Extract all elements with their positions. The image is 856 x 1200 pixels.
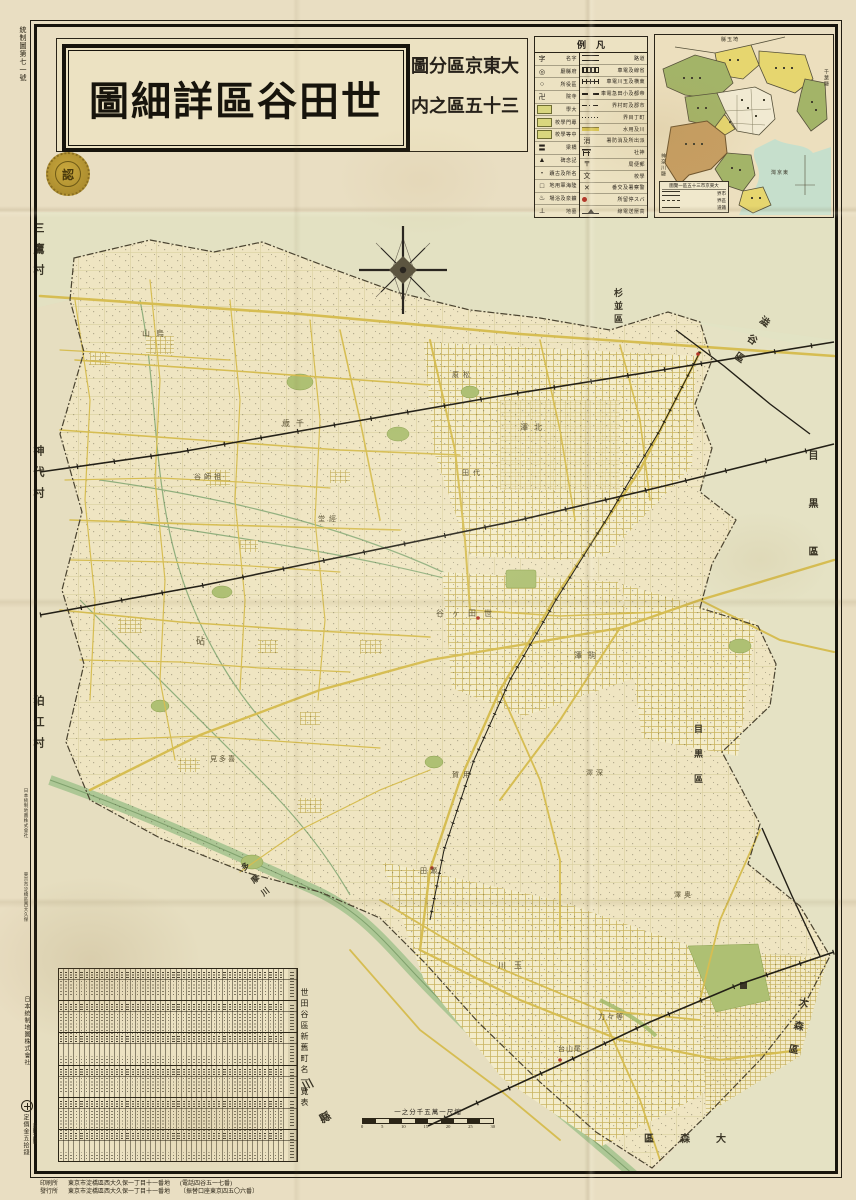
legend-symbol-glyph: 消 <box>582 137 592 145</box>
table-column <box>69 1033 74 1064</box>
table-band <box>59 1066 297 1098</box>
table-column <box>248 1098 253 1129</box>
table-column <box>90 969 95 1000</box>
table-column <box>80 1098 85 1129</box>
table-column <box>151 1001 156 1032</box>
table-column <box>110 1033 115 1064</box>
legend-symbol-water <box>582 127 599 131</box>
table-column <box>233 1033 238 1064</box>
scale-tick: 30 <box>490 1124 495 1129</box>
legend-symbol-dashdot <box>582 105 599 106</box>
legend-symbol-box <box>537 130 552 139</box>
table-column <box>59 1001 64 1032</box>
table-column <box>120 1098 125 1129</box>
legend-row: 局便郵〒 <box>580 159 647 171</box>
table-column <box>126 1033 131 1064</box>
table-column <box>59 969 64 1000</box>
table-column <box>274 1033 279 1064</box>
margin-note: 日本統制地圖株式會社 <box>23 788 29 838</box>
table-column <box>197 1098 202 1129</box>
price-label: 定價金五拾錢 <box>21 1114 30 1156</box>
table-column <box>269 969 274 1000</box>
table-column <box>146 969 151 1000</box>
table-column <box>171 1033 176 1064</box>
table-column <box>105 1098 110 1129</box>
table-band-header <box>288 969 297 1000</box>
table-column <box>253 1066 258 1097</box>
legend-label: 署防消及所出派 <box>594 137 645 144</box>
table-column <box>279 1033 284 1064</box>
legend-row: 所留停スバ <box>580 194 647 206</box>
table-column <box>146 1001 151 1032</box>
publisher-name-vertical: 日本統制地圖株式會社 <box>22 996 31 1066</box>
legend-row: 所役區○ <box>535 78 579 91</box>
series-line-1: 圖分區京東大 <box>407 47 523 87</box>
table-column <box>248 1066 253 1097</box>
table-column <box>279 969 284 1000</box>
table-column <box>131 1066 136 1097</box>
table-column <box>274 969 279 1000</box>
legend-symbol-glyph: ・ <box>537 169 547 177</box>
table-column <box>192 1033 197 1064</box>
imprint-label: 發行所 <box>40 1189 58 1195</box>
table-column <box>228 1066 233 1097</box>
table-column <box>90 1033 95 1064</box>
legend-label: 界村町及郡市 <box>601 102 645 109</box>
table-column <box>217 1066 222 1097</box>
town-names-table <box>58 968 298 1162</box>
scale-tick: 0 <box>361 1124 363 1129</box>
legend-row: 校學文 <box>580 171 647 183</box>
table-column <box>90 1098 95 1129</box>
table-column <box>156 1098 161 1129</box>
imprint-label: 印刷所 <box>40 1181 58 1187</box>
table-column <box>64 1130 69 1161</box>
legend-row: 校學門專 <box>535 116 579 129</box>
table-column <box>126 1098 131 1129</box>
series-title: 圖分區京東大 内之區五十三 <box>407 47 523 126</box>
table-column <box>105 1033 110 1064</box>
table-column <box>136 969 141 1000</box>
legend-row: 校學等中 <box>535 129 579 142</box>
table-column <box>100 1033 105 1064</box>
legend-label: 界目丁町 <box>601 114 645 121</box>
table-column <box>80 1001 85 1032</box>
legend-column-right: 路道車電及線省車電川玉及横東車電急田小及都帝界村町及郡市界目丁町水用及川署防消及… <box>579 53 647 217</box>
table-column <box>59 1033 64 1064</box>
table-column <box>156 1130 161 1161</box>
table-column <box>136 1066 141 1097</box>
table-column <box>197 1033 202 1064</box>
legend-symbol-glyph: ◎ <box>537 68 547 76</box>
table-column <box>279 1098 284 1129</box>
table-column <box>258 1033 263 1064</box>
table-column <box>120 1033 125 1064</box>
table-band-header <box>288 1001 297 1032</box>
table-column <box>263 1066 268 1097</box>
table-column <box>69 969 74 1000</box>
table-column <box>85 1098 90 1129</box>
margin-note: 東京市淀橋區西大久保 <box>23 872 29 922</box>
table-column <box>110 969 115 1000</box>
table-column <box>182 1001 187 1032</box>
table-column <box>80 1033 85 1064</box>
legend-row: 社神 <box>580 147 647 159</box>
legend-symbol-glyph: □ <box>537 182 547 190</box>
legend-row: 車電川玉及横東 <box>580 77 647 89</box>
table-column <box>110 1001 115 1032</box>
table-column <box>95 969 100 1000</box>
table-column <box>141 1098 146 1129</box>
table-column <box>248 1001 253 1032</box>
table-column <box>253 1001 258 1032</box>
legend-symbol-tram <box>582 79 599 84</box>
table-column <box>233 1130 238 1161</box>
table-column <box>141 1001 146 1032</box>
table-column <box>161 1098 166 1129</box>
table-column <box>207 1130 212 1161</box>
table-column <box>151 1130 156 1161</box>
table-band <box>59 1098 297 1130</box>
table-column <box>74 1130 79 1161</box>
table-column <box>238 1098 243 1129</box>
table-column <box>80 969 85 1000</box>
imprint-addr: 東京市淀橋區西大久保一丁目十一番地 <box>68 1181 170 1187</box>
table-column <box>238 969 243 1000</box>
table-column <box>166 1130 171 1161</box>
table-column <box>197 1130 202 1161</box>
table-column <box>228 1130 233 1161</box>
table-column <box>243 1098 248 1129</box>
table-column <box>202 1066 207 1097</box>
table-column <box>90 1130 95 1161</box>
inset-locator-map: 縣玉埼千葉縣神奈川縣灣京東 圖覽一區五十三市京東大 界市界區道鐵 <box>654 34 834 218</box>
table-column <box>100 1001 105 1032</box>
legend-symbol-glyph: ▲ <box>537 156 547 164</box>
table-column <box>223 1066 228 1097</box>
table-column <box>207 1033 212 1064</box>
table-column <box>192 1066 197 1097</box>
table-column <box>279 1066 284 1097</box>
table-column <box>69 1098 74 1129</box>
table-column <box>253 1033 258 1064</box>
legend-title: 例凡 <box>535 37 647 53</box>
table-column <box>64 1098 69 1129</box>
table-column <box>202 969 207 1000</box>
table-column <box>228 1033 233 1064</box>
table-column <box>177 1001 182 1032</box>
table-column <box>120 1130 125 1161</box>
table-column <box>197 1066 202 1097</box>
table-column <box>233 969 238 1000</box>
table-column <box>202 1098 207 1129</box>
table-column <box>141 1066 146 1097</box>
legend-row: 地用軍海陸□ <box>535 180 579 193</box>
table-column <box>166 969 171 1000</box>
table-column <box>182 969 187 1000</box>
table-column <box>177 1066 182 1097</box>
table-column <box>258 969 263 1000</box>
legend-label: 水用及川 <box>601 126 645 133</box>
table-column <box>90 1001 95 1032</box>
table-band-header <box>288 1066 297 1097</box>
table-column <box>274 1130 279 1161</box>
table-column <box>228 1001 233 1032</box>
table-column <box>136 1130 141 1161</box>
legend-row: 廳縣府◎ <box>535 66 579 79</box>
table-column <box>85 969 90 1000</box>
table-column <box>187 1098 192 1129</box>
legend-row: 界村町及郡市 <box>580 100 647 112</box>
table-column <box>274 1001 279 1032</box>
table-column <box>156 1066 161 1097</box>
table-column <box>238 1066 243 1097</box>
table-column <box>263 969 268 1000</box>
table-column <box>146 1033 151 1064</box>
inset-legend-row: 界區 <box>662 197 726 204</box>
table-column <box>233 1066 238 1097</box>
legend-row: 學大 <box>535 104 579 117</box>
table-column <box>171 1130 176 1161</box>
table-column <box>126 1001 131 1032</box>
table-column <box>279 1130 284 1161</box>
inset-legend-title: 圖覽一區五十三市京東大 <box>662 183 726 190</box>
table-column <box>166 1066 171 1097</box>
table-column <box>263 1130 268 1161</box>
table-column <box>223 1098 228 1129</box>
main-title-box: 圖細詳區谷田世 <box>62 44 410 152</box>
table-column <box>253 1130 258 1161</box>
legend-symbol-box <box>537 105 552 114</box>
legend-symbol-rail <box>582 67 599 73</box>
table-column <box>80 1066 85 1097</box>
table-column <box>161 1130 166 1161</box>
title-block: 圖細詳區谷田世 圖分區京東大 内之區五十三 <box>56 38 528 152</box>
table-column <box>212 1130 217 1161</box>
certification-seal: 認 <box>46 152 90 196</box>
table-column <box>85 1066 90 1097</box>
legend-row: 蹟古及所名・ <box>535 167 579 180</box>
price-note: 〔送料六錢〕 <box>32 1120 38 1147</box>
table-column <box>110 1066 115 1097</box>
imprint-line: 發行所東京市淀橋區西大久保一丁目十一番地〔振替口座東京四五〇六番〕 <box>40 1188 268 1196</box>
table-column <box>228 969 233 1000</box>
legend-label: 車電及線省 <box>601 67 645 74</box>
table-column <box>126 969 131 1000</box>
table-column <box>110 1098 115 1129</box>
table-column <box>126 1130 131 1161</box>
legend-row: 水用及川 <box>580 124 647 136</box>
legend-symbol-box <box>537 118 552 127</box>
table-column <box>69 1001 74 1032</box>
legend-row: 院寺卍 <box>535 91 579 104</box>
table-column <box>90 1066 95 1097</box>
table-column <box>182 1130 187 1161</box>
table-column <box>182 1066 187 1097</box>
table-column <box>187 1001 192 1032</box>
legend-label: 場浴及泉鑛 <box>549 195 577 202</box>
table-column <box>177 969 182 1000</box>
table-column <box>151 1033 156 1064</box>
table-column <box>95 1098 100 1129</box>
table-column <box>166 1001 171 1032</box>
table-column <box>223 1001 228 1032</box>
table-column <box>74 969 79 1000</box>
table-column <box>253 969 258 1000</box>
table-column <box>64 1001 69 1032</box>
scale-text: 一之分千五萬一尺縮 <box>350 1106 506 1116</box>
table-column <box>115 1066 120 1097</box>
table-column <box>115 1130 120 1161</box>
inset-label: 神奈川縣 <box>659 153 666 177</box>
table-column <box>120 1066 125 1097</box>
table-band <box>59 969 297 1001</box>
town-names-table-title: 世田谷區新舊町名一覽表 <box>299 988 310 1109</box>
table-column <box>95 1033 100 1064</box>
legend-symbol-glyph: 卍 <box>537 93 547 101</box>
legend-symbol-power <box>582 213 599 214</box>
legend-label: 碑念記 <box>549 157 577 164</box>
table-column <box>80 1130 85 1161</box>
table-column <box>223 1130 228 1161</box>
table-band <box>59 1130 297 1161</box>
table-column <box>269 1033 274 1064</box>
table-column <box>269 1066 274 1097</box>
table-column <box>146 1066 151 1097</box>
table-column <box>85 1130 90 1161</box>
imprint-addr: 東京市淀橋區西大久保一丁目十一番地 <box>68 1189 170 1195</box>
table-column <box>243 1001 248 1032</box>
table-column <box>74 1001 79 1032</box>
table-column <box>182 1098 187 1129</box>
table-column <box>95 1066 100 1097</box>
inset-label: 灣京東 <box>771 169 789 176</box>
legend-row: 車電急田小及都帝 <box>580 88 647 100</box>
legend-row: 路道 <box>580 53 647 65</box>
scale-tick: 25 <box>468 1124 473 1129</box>
table-column <box>238 1130 243 1161</box>
table-column <box>100 969 105 1000</box>
table-column <box>151 969 156 1000</box>
table-column <box>100 1066 105 1097</box>
table-column <box>217 1098 222 1129</box>
table-column <box>161 1001 166 1032</box>
map-title: 圖細詳區谷田世 <box>89 69 383 127</box>
legend-label: 院寺 <box>549 93 577 100</box>
table-column <box>269 1001 274 1032</box>
table-column <box>171 969 176 1000</box>
legend-label: 校學 <box>594 173 645 180</box>
table-column <box>207 969 212 1000</box>
table-column <box>274 1066 279 1097</box>
table-column <box>243 1130 248 1161</box>
legend-row: 場浴及泉鑛♨ <box>535 193 579 206</box>
table-column <box>141 969 146 1000</box>
publisher-mark-icon <box>21 1100 33 1112</box>
legend-row: 地墓⊥ <box>535 205 579 217</box>
seal-character: 認 <box>62 166 74 183</box>
legend-label: 蹟古及所名 <box>549 170 577 177</box>
inset-legend-box: 圖覽一區五十三市京東大 界市界區道鐵 <box>659 181 729 213</box>
table-column <box>115 969 120 1000</box>
series-line-2: 内之區五十三 <box>407 87 523 127</box>
table-column <box>115 1033 120 1064</box>
registration-number: 統制圖第七一號 <box>18 26 28 82</box>
table-column <box>177 1098 182 1129</box>
table-column <box>177 1033 182 1064</box>
legend-symbol-double <box>582 55 599 61</box>
table-column <box>156 1001 161 1032</box>
table-column <box>156 1033 161 1064</box>
table-column <box>187 969 192 1000</box>
table-column <box>207 1066 212 1097</box>
table-column <box>212 1033 217 1064</box>
table-column <box>85 1033 90 1064</box>
table-band <box>59 1001 297 1033</box>
table-column <box>187 1130 192 1161</box>
table-column <box>171 1098 176 1129</box>
legend-row: 梁橋〓 <box>535 142 579 155</box>
legend-row: 車電及線省 <box>580 65 647 77</box>
table-column <box>248 1033 253 1064</box>
table-column <box>151 1098 156 1129</box>
table-column <box>182 1033 187 1064</box>
legend-label: 車電川玉及横東 <box>601 78 645 85</box>
legend-label: 局便郵 <box>594 161 645 168</box>
legend-label: 地用軍海陸 <box>549 182 577 189</box>
table-column <box>187 1033 192 1064</box>
table-column <box>253 1098 258 1129</box>
table-column <box>105 1001 110 1032</box>
table-column <box>146 1130 151 1161</box>
table-column <box>131 1033 136 1064</box>
legend-symbol-torii <box>582 149 591 156</box>
table-column <box>146 1098 151 1129</box>
legend-row: 線電送壓高 <box>580 206 647 217</box>
table-column <box>141 1130 146 1161</box>
table-column <box>171 1001 176 1032</box>
inset-label: 千葉縣 <box>822 69 829 87</box>
scale-tick: 15 <box>423 1124 428 1129</box>
table-column <box>279 1001 284 1032</box>
table-column <box>238 1001 243 1032</box>
table-column <box>263 1001 268 1032</box>
table-column <box>207 1098 212 1129</box>
table-column <box>161 1033 166 1064</box>
table-column <box>136 1098 141 1129</box>
inset-legend-row: 道鐵 <box>662 204 726 211</box>
table-column <box>212 1066 217 1097</box>
table-column <box>243 1066 248 1097</box>
table-column <box>192 969 197 1000</box>
table-column <box>120 1001 125 1032</box>
table-column <box>161 969 166 1000</box>
table-column <box>223 969 228 1000</box>
table-column <box>212 1098 217 1129</box>
legend-label: 學大 <box>554 106 577 113</box>
legend-label: 名字 <box>549 55 577 62</box>
table-column <box>177 1130 182 1161</box>
table-column <box>115 1098 120 1129</box>
table-column <box>105 969 110 1000</box>
table-column <box>202 1001 207 1032</box>
imprint-line: 印刷所東京市淀橋區西大久保一丁目十一番地(電話四谷五一七番) <box>40 1180 268 1188</box>
legend-label: 所留停スバ <box>589 196 645 203</box>
table-column <box>131 1130 136 1161</box>
table-column <box>217 969 222 1000</box>
legend-symbol-glyph: ♨ <box>537 194 547 202</box>
table-column <box>131 969 136 1000</box>
